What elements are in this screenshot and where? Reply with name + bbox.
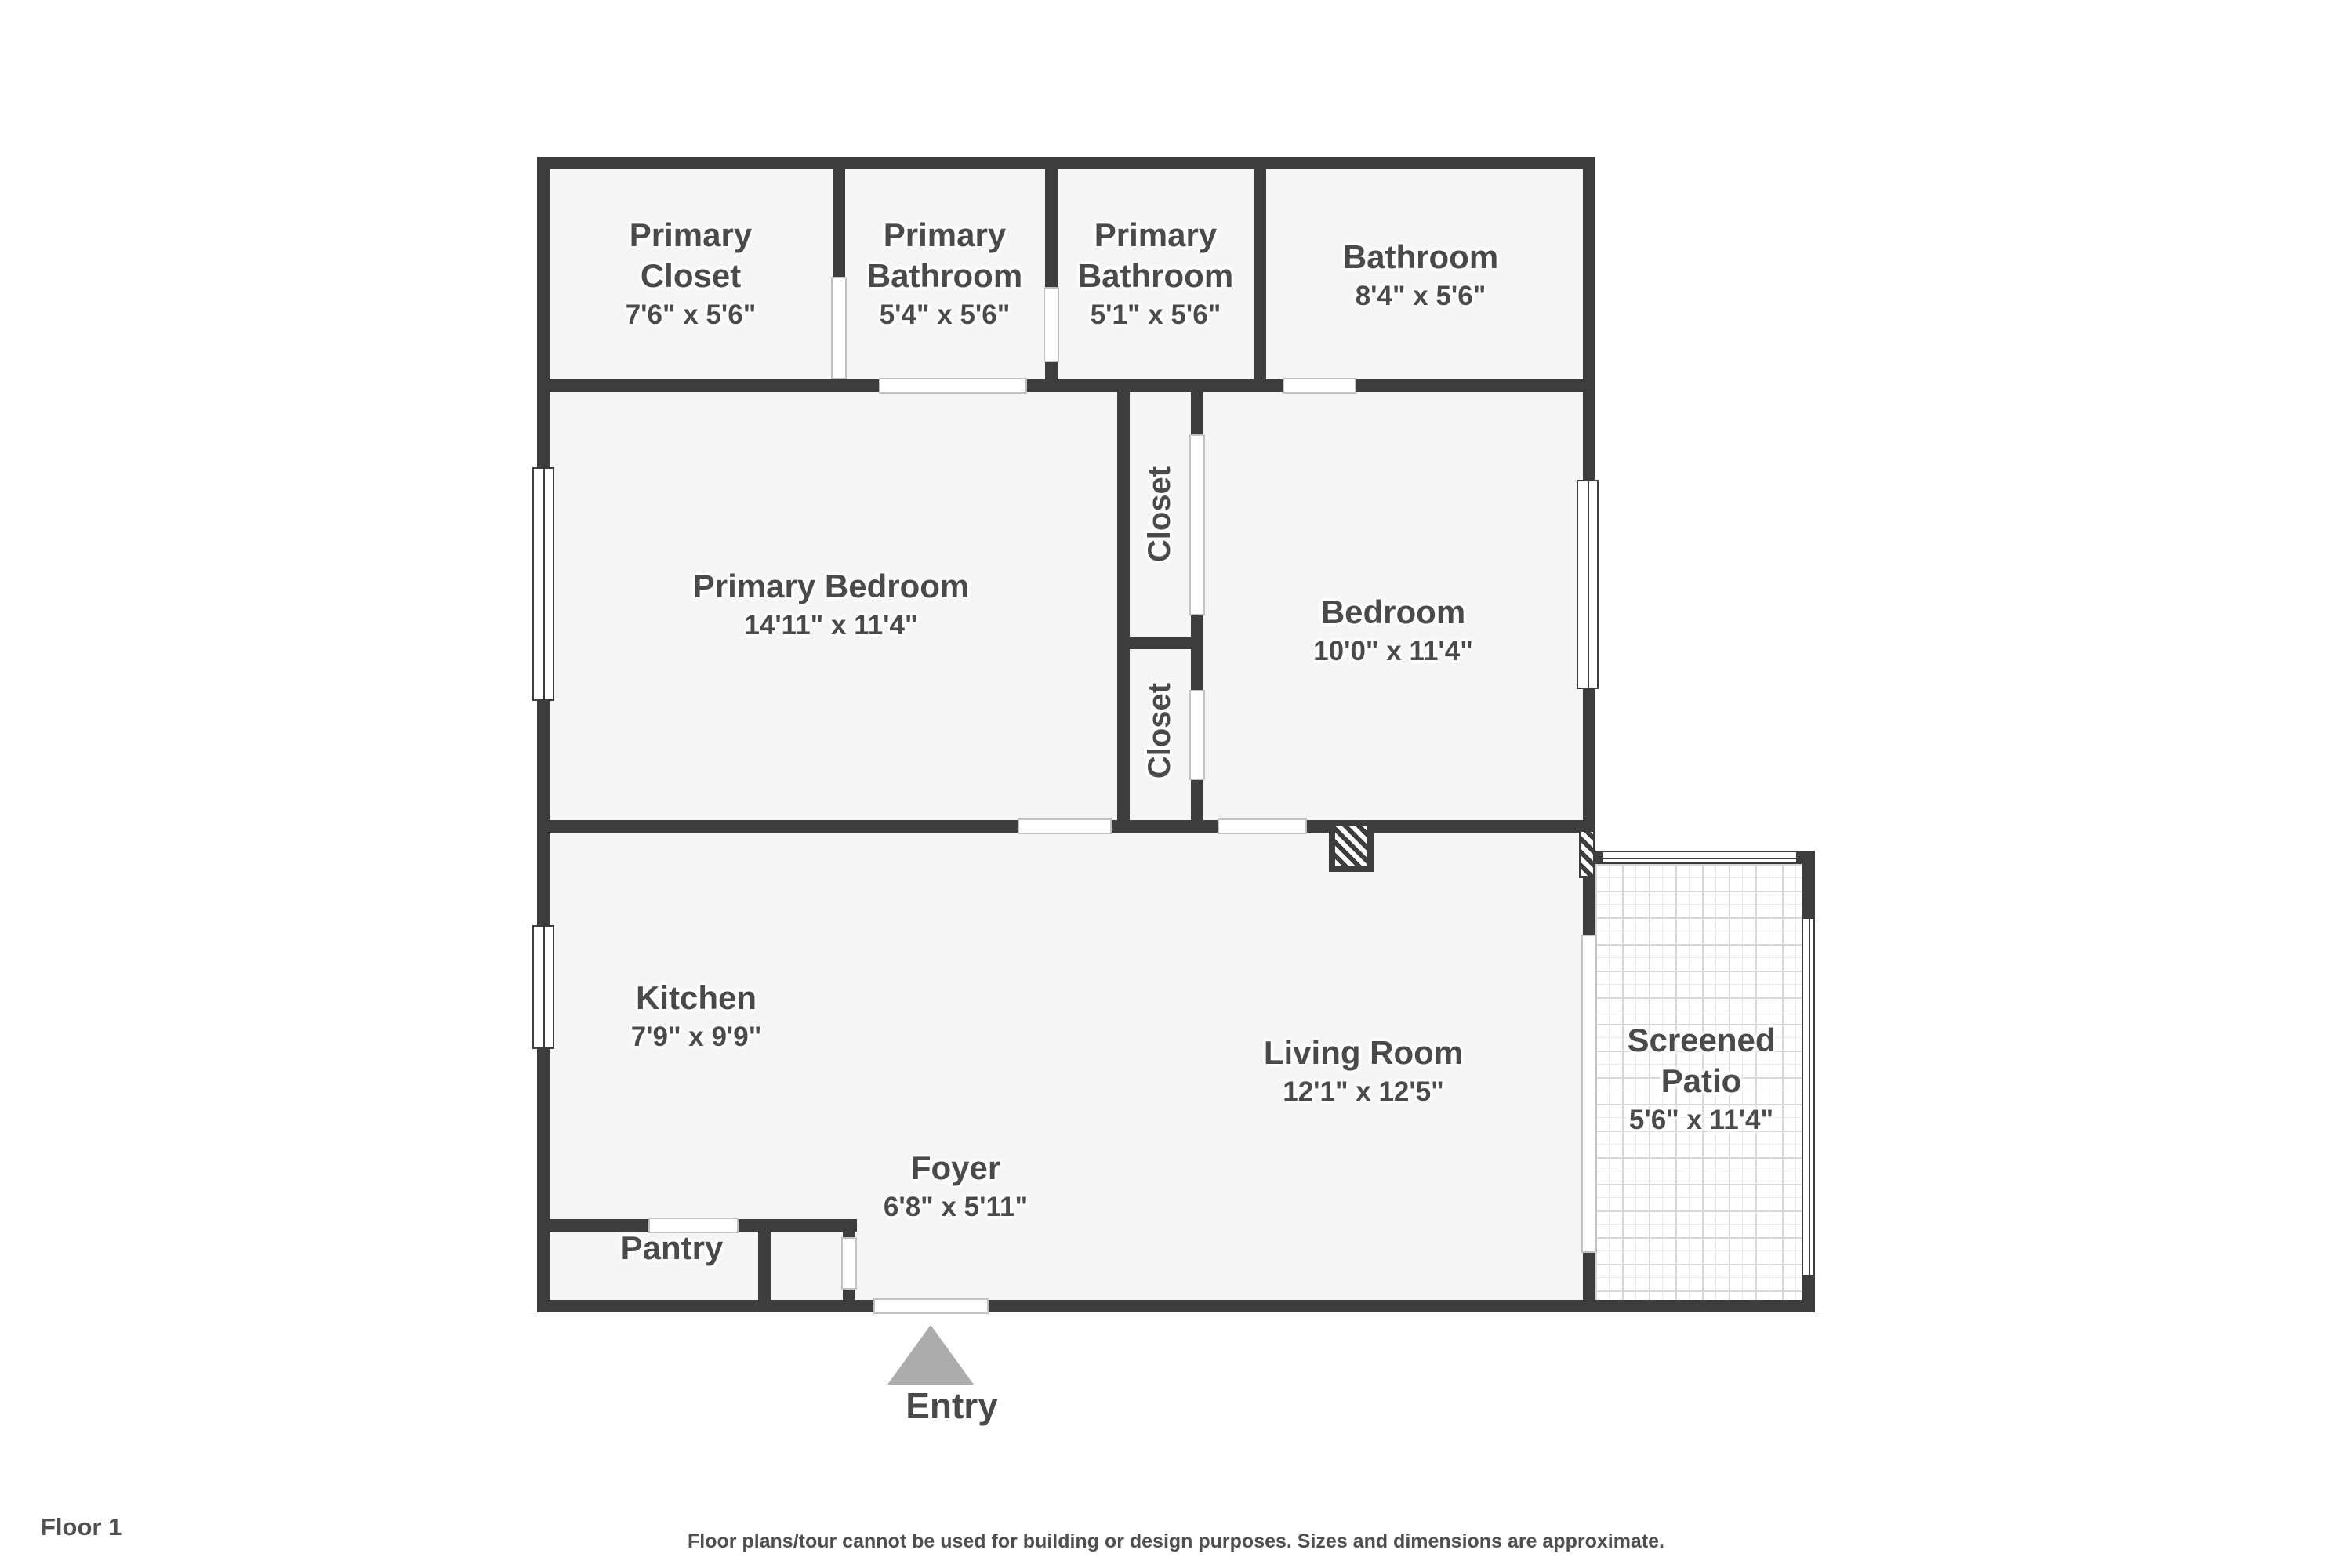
screen-patio-right [1802,917,1815,1276]
utility-hatch-living-wall [1329,820,1374,872]
room-label-foyer: Foyer 6'8" x 5'11" [884,1148,1028,1223]
wall-exterior-left [537,157,550,1312]
room-dims: 7'9" x 9'9" [631,1022,762,1053]
room-dims: 7'6" x 5'6" [626,299,757,331]
wall-pantry-divider [758,1232,771,1300]
room-label-primary-bathroom-1: Primary Bathroom 5'4" x 5'6" [867,215,1022,331]
wall-closet-left [1117,392,1130,820]
window-pane [543,927,545,1047]
window-pane [543,469,545,699]
wall-exterior-right-lower [1583,1253,1595,1312]
window-primary-bedroom [532,467,554,701]
wall-exterior-bottom [537,1300,1815,1312]
room-name: Kitchen [631,978,762,1018]
room-label-closet-upper: Closet [1141,466,1180,562]
entry-arrow-icon [887,1325,974,1385]
room-name: Primary Bathroom [1078,215,1233,296]
room-label-bedroom: Bedroom 10'0" x 11'4" [1313,592,1473,667]
room-name: Bathroom [1343,237,1498,278]
window-pane [1603,858,1796,859]
window-kitchen [532,925,554,1049]
disclaimer-text: Floor plans/tour cannot be used for buil… [688,1530,1664,1553]
wall-top-row-bottom [537,379,1595,392]
room-name: Closet [1141,683,1180,779]
room-label-pantry: Pantry [621,1228,724,1269]
door-opening-primary-bedroom [1018,818,1112,834]
room-label-kitchen: Kitchen 7'9" x 9'9" [631,978,762,1053]
room-label-living-room: Living Room 12'1" x 12'5" [1264,1033,1463,1108]
room-name: Primary Closet [626,215,757,296]
room-name: Living Room [1264,1033,1463,1073]
utility-hatch-patio-corner [1579,829,1595,878]
room-name: Bedroom [1313,592,1473,633]
room-dims: 5'1" x 5'6" [1078,299,1233,331]
window-pane [1588,481,1589,688]
room-name: Primary Bedroom [693,566,969,607]
window-bedroom [1577,480,1599,689]
wall-mid-left [537,820,1018,833]
floor-number-label: Floor 1 [41,1513,122,1541]
room-label-bathroom: Bathroom 8'4" x 5'6" [1343,237,1498,312]
room-name: Pantry [621,1228,724,1269]
wall-mid-center [1112,820,1218,833]
wall-exterior-top [537,157,1595,169]
room-label-closet-lower: Closet [1141,683,1180,779]
room-dims: 5'4" x 5'6" [867,299,1022,331]
room-dims: 12'1" x 12'5" [1264,1076,1463,1108]
door-opening-closet-upper [1189,434,1205,615]
room-dims: 8'4" x 5'6" [1343,281,1498,312]
room-label-primary-bedroom: Primary Bedroom 14'11" x 11'4" [693,566,969,641]
door-opening-bathroom [1283,378,1356,394]
wall-divider-bath2-bathroom [1254,169,1266,379]
room-name: Closet [1141,466,1180,562]
door-opening-primary-closet [831,277,847,379]
room-dims: 10'0" x 11'4" [1313,636,1473,667]
room-name: Primary Bathroom [867,215,1022,296]
room-label-primary-bathroom-2: Primary Bathroom 5'1" x 5'6" [1078,215,1233,331]
room-label-screened-patio: Screened Patio 5'6" x 11'4" [1627,1020,1775,1136]
door-opening-foyer-closet [841,1237,857,1290]
room-dims: 5'6" x 11'4" [1627,1105,1775,1136]
room-label-primary-closet: Primary Closet 7'6" x 5'6" [626,215,757,331]
room-name: Screened Patio [1627,1020,1775,1102]
door-opening-primary-bathrooms [1044,287,1059,362]
door-opening-bedroom-hall [1218,818,1307,834]
room-name: Foyer [884,1148,1028,1189]
room-dims: 14'11" x 11'4" [693,610,969,641]
entry-door-opening [873,1298,989,1314]
door-opening-closet-lower [1189,690,1205,780]
wall-closet-middle [1117,637,1203,649]
door-opening-primary-bathroom-entry [879,378,1027,394]
screen-patio-top [1602,851,1798,864]
window-pane [1809,919,1810,1275]
floor-plan: Entry Primary Closet 7'6" x 5'6" Primary… [0,0,2352,1568]
door-opening-patio-slider [1581,935,1597,1253]
room-dims: 6'8" x 5'11" [884,1192,1028,1223]
entry-label: Entry [906,1385,998,1427]
